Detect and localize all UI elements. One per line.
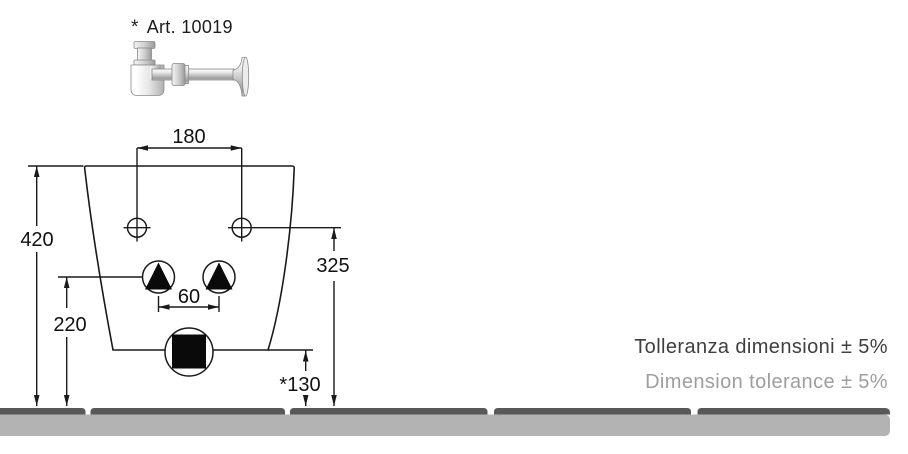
siphon-nut-ring (185, 66, 189, 84)
dim-label-60: 60 (178, 286, 200, 308)
dim-label-420: 420 (20, 229, 53, 251)
siphon-cup-collar (134, 60, 155, 65)
waste-outlet (165, 328, 213, 376)
dim-label-180: 180 (172, 126, 205, 148)
dimension-180: 180 (137, 126, 242, 151)
fixture-outline (85, 166, 295, 350)
siphon-tube (152, 69, 234, 80)
dim-label-325: 325 (316, 255, 349, 277)
dimension-130: *130 (279, 351, 320, 407)
siphon-nut (172, 64, 185, 86)
siphon-inlet-pipe (138, 48, 152, 61)
dim-label-130: *130 (279, 374, 320, 396)
tolerance-note-english: Dimension tolerance ± 5% (645, 371, 888, 394)
spec-sheet: *Art. 10019 (0, 0, 908, 454)
tolerance-note-italian: Tolleranza dimensioni ± 5% (634, 336, 888, 359)
siphon-flange-rim (242, 57, 248, 96)
floor-top-segments (0, 408, 890, 415)
dim-label-220: 220 (53, 314, 86, 336)
siphon-trap-illustration (131, 42, 249, 97)
supply-inlet-left (143, 261, 175, 293)
supply-inlet-right (203, 261, 235, 293)
siphon-top-nut (134, 42, 155, 49)
dimension-420: 420 (20, 166, 83, 406)
waste-outlet-square (172, 335, 206, 369)
floor-line (0, 408, 890, 436)
floor-body (0, 415, 890, 437)
